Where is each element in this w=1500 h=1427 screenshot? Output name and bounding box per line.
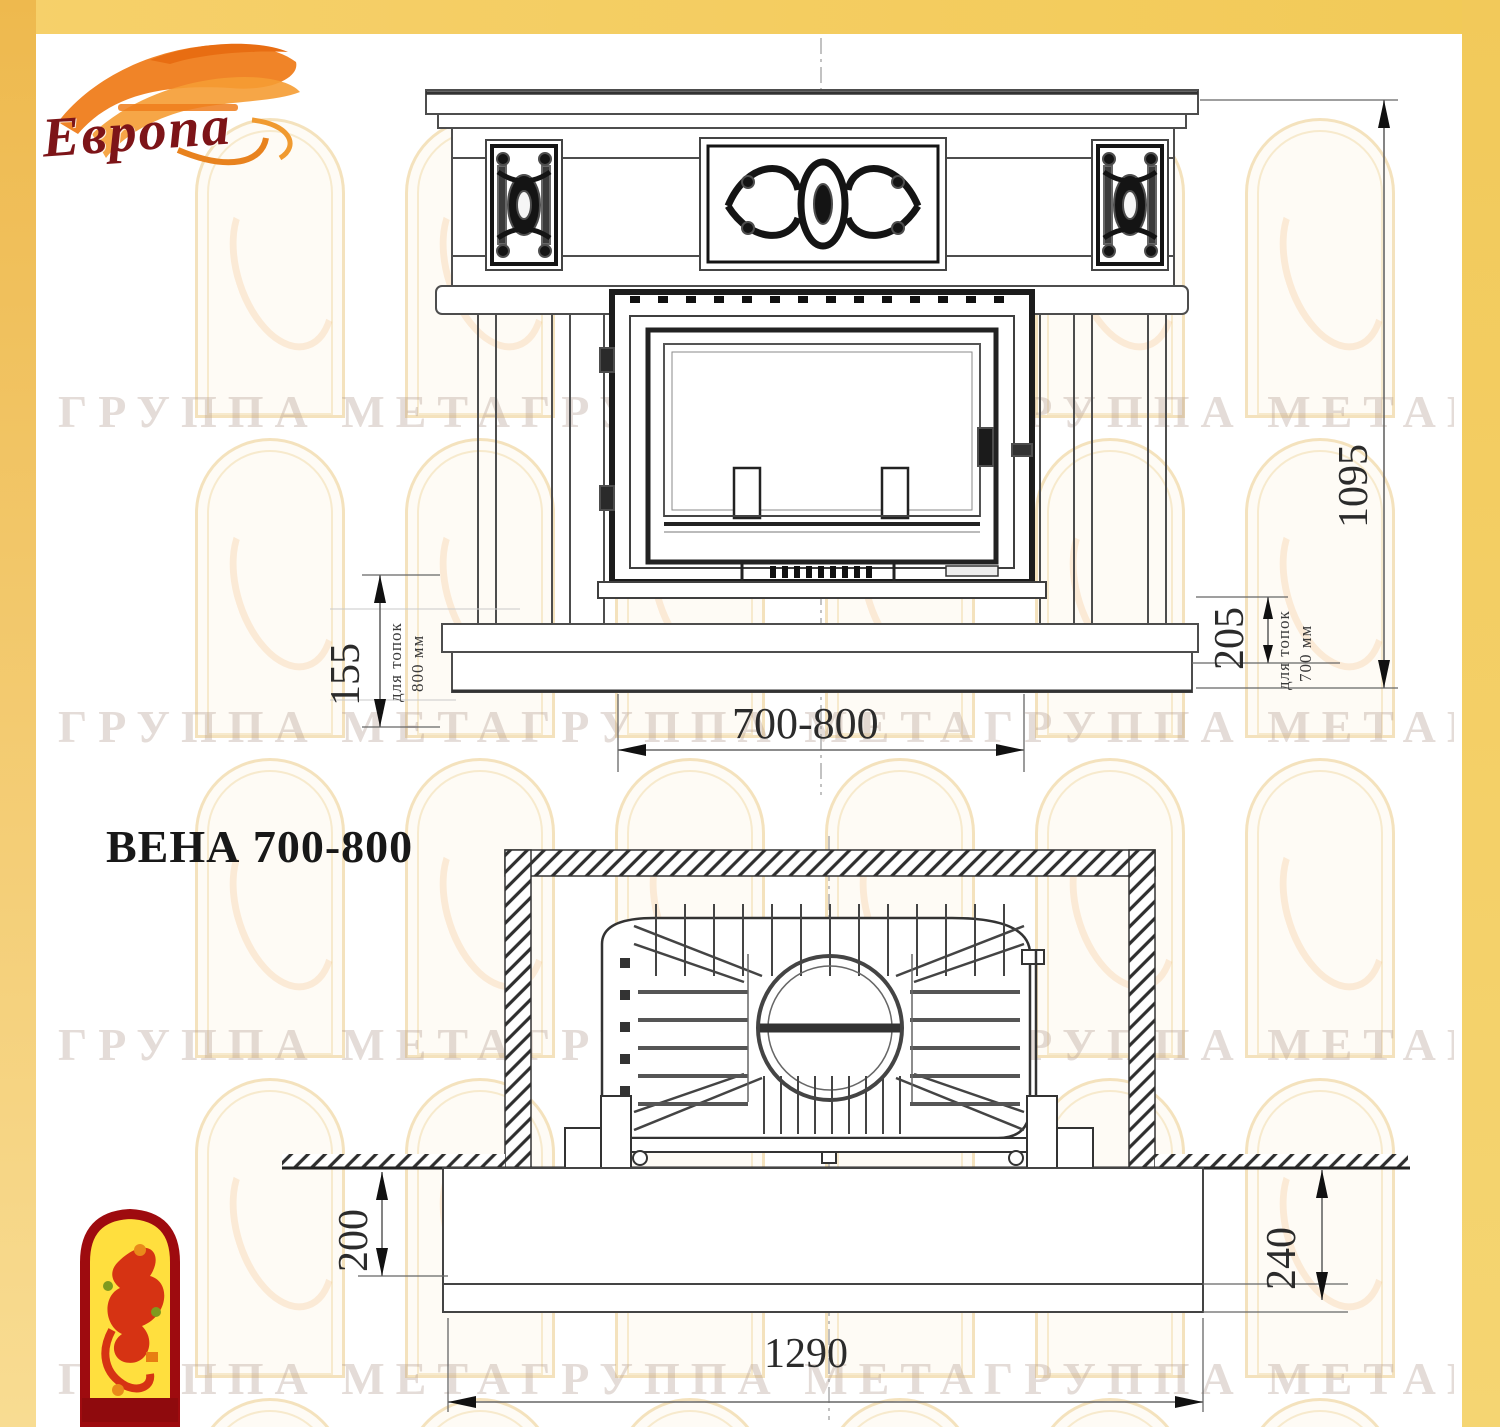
dim-plinth-left: 155 [322,643,370,706]
plinth [452,652,1192,692]
note-firebox-800-line1: для топок [386,622,406,702]
firebox-insert [598,292,1046,598]
frieze-ornament-right [1092,140,1168,270]
ash-plate [946,566,998,576]
andiron-left [734,468,760,518]
door-handle [978,428,993,466]
border-strip-left [0,0,36,1427]
andiron-right [882,468,908,518]
hinge-bottom [600,486,614,510]
dim-total-height: 1095 [1330,444,1378,528]
border-strip-right [1462,0,1500,1427]
note-firebox-700-line2: 700 мм [1296,625,1316,682]
latch [1012,444,1032,456]
note-firebox-800-line2: 800 мм [408,635,428,692]
dim-firebox-width: 700-800 [732,698,879,749]
corner-emblem [82,1214,178,1427]
frieze-ornament-center [700,138,946,270]
vent-grille-bottom [770,566,872,578]
dim-plinth-right: 205 [1206,607,1254,670]
border-strip-top [0,0,1500,34]
frieze-ornament-left [486,140,562,270]
dim-depth-right: 240 [1258,1227,1306,1290]
hinge-top [600,348,614,372]
plan-plinth [443,1168,1203,1312]
insert-top-view [565,904,1093,1168]
front-elevation [330,38,1198,795]
hearth-slab [442,624,1198,652]
model-title: ВЕНА 700-800 [106,820,413,873]
drawing-page: ГРУППА МЕТАГРУППА МЕТАГРУППА МЕТАГРУППА … [0,0,1500,1427]
dim-depth-left: 200 [330,1209,378,1272]
wall-right [1129,850,1155,1168]
wall-left [505,850,531,1168]
dim-base-width: 1290 [764,1330,848,1378]
brand-name: Европа [40,93,234,170]
column-right [1074,314,1166,626]
column-left [478,314,570,626]
wall-top [505,850,1155,876]
note-firebox-700-line1: для топок [1274,610,1294,690]
